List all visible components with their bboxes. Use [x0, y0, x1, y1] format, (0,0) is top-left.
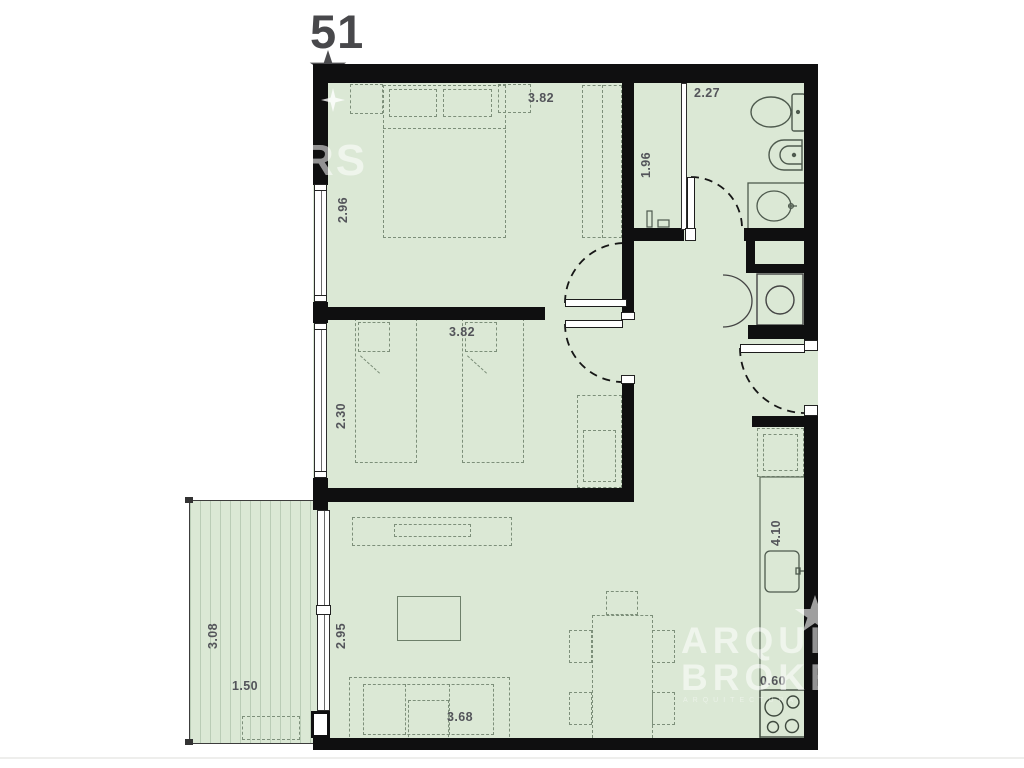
- watermark-brand-line1: ARQUI: [681, 620, 825, 662]
- wall-pier: [311, 711, 330, 738]
- dim-living-length: 3.68: [434, 710, 486, 724]
- laundry-door-leaf: [723, 275, 752, 301]
- entry-door-leaf: [740, 344, 805, 353]
- floorplan-canvas: 51: [0, 0, 1024, 768]
- door-jamb: [621, 375, 635, 384]
- door-jamb: [685, 228, 696, 241]
- dim-bedroom2-width: 3.82: [436, 325, 488, 339]
- bedroom2-door-leaf: [565, 320, 623, 328]
- window: [314, 185, 327, 302]
- wall: [622, 228, 684, 241]
- bathroom-door-leaf: [687, 177, 695, 230]
- door-jamb: [621, 312, 635, 320]
- dim-living-width: 2.95: [334, 610, 348, 662]
- toilet-icon: [751, 94, 805, 131]
- dim-balcony-depth: 3.08: [206, 610, 220, 662]
- bedroom1-door-arc: [565, 243, 625, 303]
- window-cap: [314, 295, 327, 302]
- entry-door-arc: [740, 348, 805, 413]
- bathroom-door-arc: [691, 177, 742, 228]
- wall: [744, 228, 806, 241]
- dim-shower-length: 1.96: [639, 139, 653, 191]
- page-edge-line: [0, 757, 1024, 759]
- wall: [622, 64, 634, 312]
- window-cap: [314, 471, 327, 478]
- dim-bedroom1-width: 3.82: [515, 91, 567, 105]
- dim-kitchen-length: 4.10: [769, 507, 783, 559]
- watermark-tagline: ARQUITECTURA: [683, 697, 798, 704]
- wall: [752, 416, 818, 427]
- wall: [313, 478, 328, 510]
- dim-bedroom2-depth: 2.30: [334, 390, 348, 442]
- watermark-partial-text: RS: [302, 136, 367, 186]
- wall: [804, 64, 818, 341]
- washing-machine-icon: [757, 274, 803, 325]
- dim-bathroom-width: 2.27: [681, 86, 733, 100]
- fixtures-layer: [0, 0, 1024, 768]
- wall: [313, 738, 818, 750]
- dim-bedroom1-depth: 2.96: [336, 184, 350, 236]
- bedroom2-door-arc: [565, 324, 623, 382]
- wall: [328, 488, 634, 502]
- wall: [748, 325, 818, 339]
- sink-icon: [748, 183, 805, 229]
- bidet-icon: [769, 140, 802, 170]
- wall: [328, 307, 545, 320]
- door-jamb: [804, 340, 818, 351]
- dim-balcony-width: 1.50: [219, 679, 271, 693]
- laundry-door-leaf: [723, 301, 752, 327]
- wall: [313, 302, 328, 323]
- door-jamb: [804, 405, 818, 416]
- watermark-brand-line2: BROKE: [681, 657, 840, 699]
- wall: [746, 264, 806, 273]
- wall: [622, 384, 634, 488]
- wall: [313, 64, 818, 83]
- shower-icon: [647, 211, 669, 227]
- bedroom1-door-leaf: [565, 299, 627, 307]
- window-cap: [314, 323, 327, 330]
- sliding-door-joint: [316, 605, 331, 615]
- window: [314, 323, 327, 478]
